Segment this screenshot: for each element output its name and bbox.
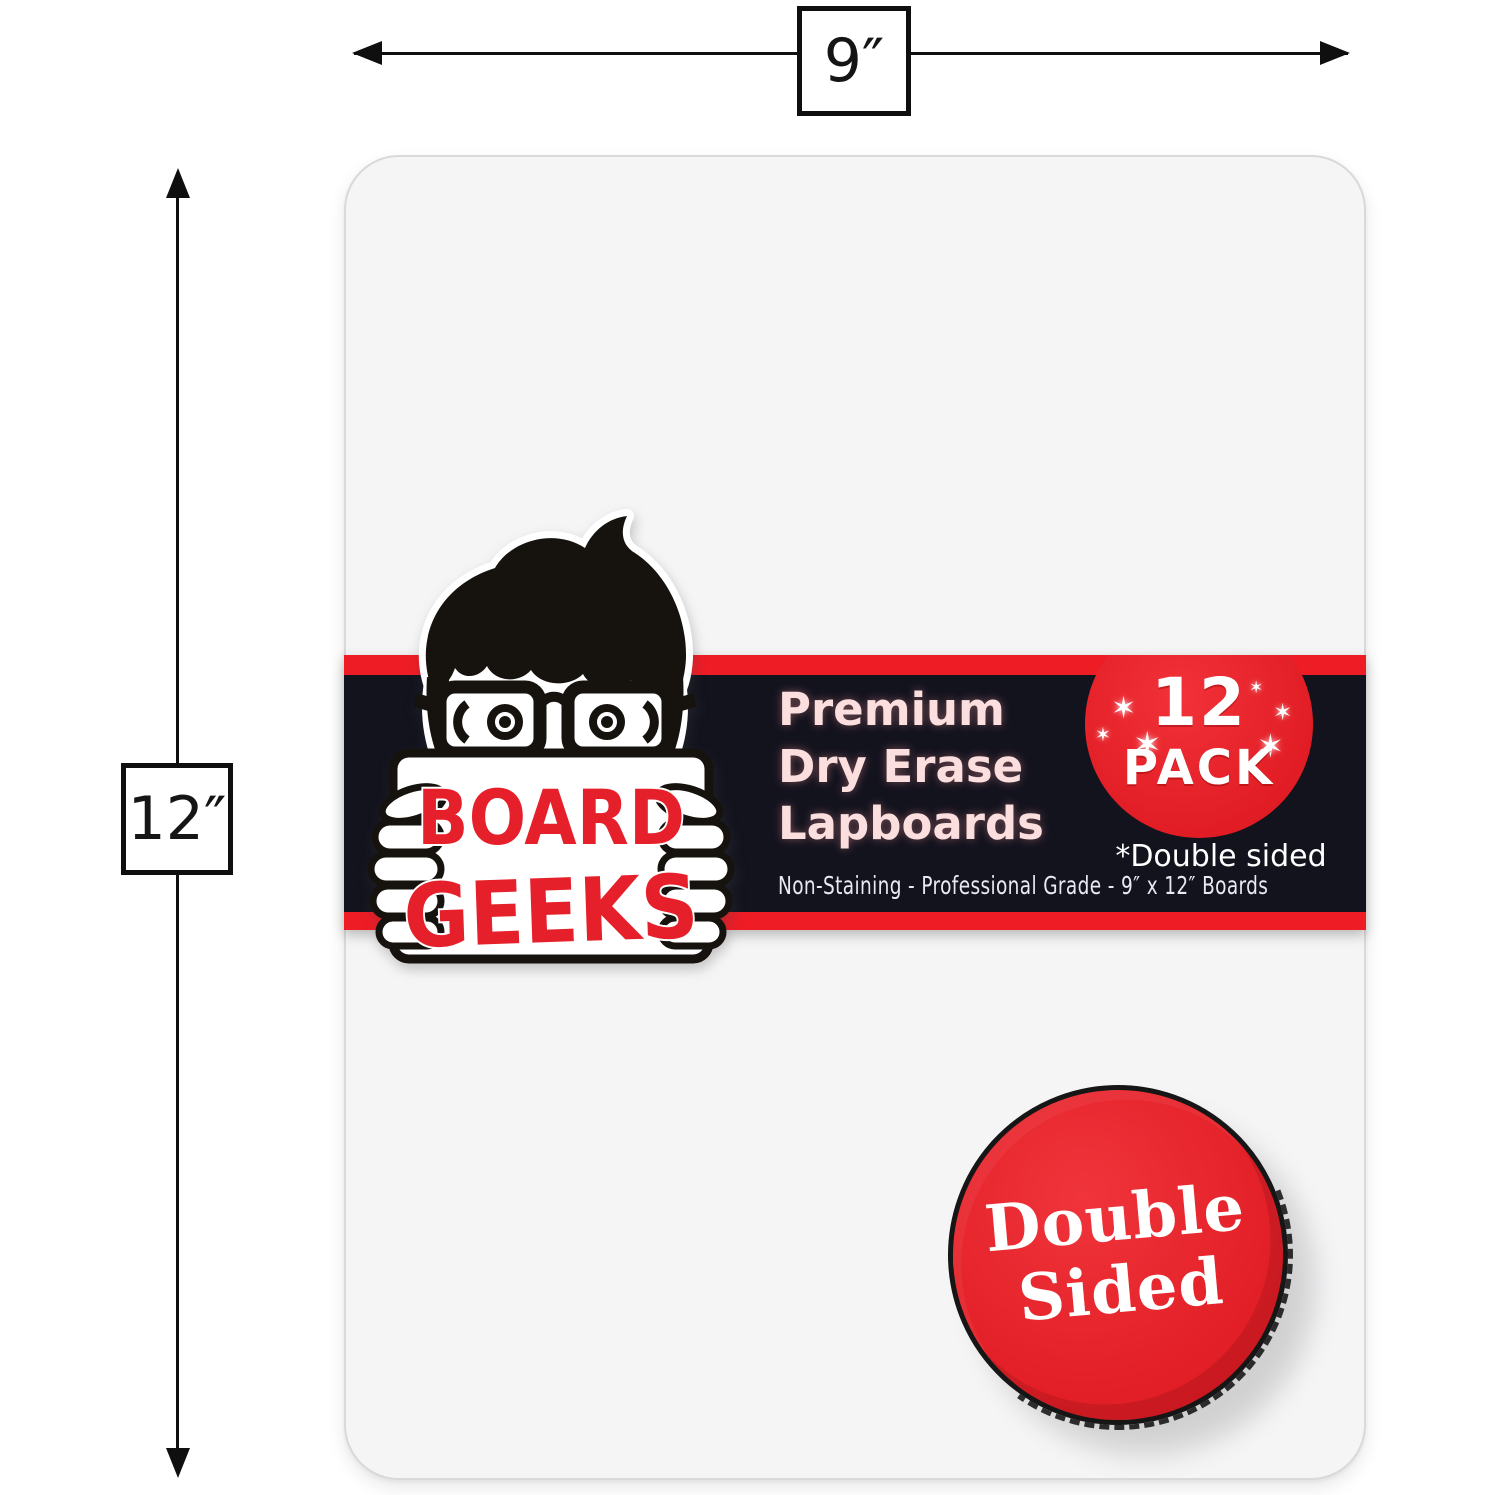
brand-word-geeks: GEEKS	[402, 855, 700, 968]
double-sided-note: *Double sided	[1101, 839, 1341, 874]
arrow-right-icon	[1320, 41, 1350, 65]
product-title-line: Premium	[778, 681, 1044, 738]
arrow-left-icon	[352, 41, 382, 65]
brand-word-board: BOARD	[417, 773, 685, 862]
product-title: Premium Dry Erase Lapboards	[778, 681, 1044, 852]
product-title-line: Dry Erase	[778, 738, 1044, 795]
product-subtitle: Non-Staining - Professional Grade - 9″ x…	[778, 871, 1268, 900]
board-geeks-mascot: BOARD GEEKS	[355, 492, 755, 972]
pack-label: PACK	[1085, 744, 1313, 792]
arrow-up-icon	[166, 168, 190, 198]
pack-count: 12	[1085, 670, 1313, 736]
arrow-down-icon	[166, 1448, 190, 1478]
pack-count-badge: ✶ ✶ ✶ ✶ ✶ ✶ 12 PACK	[1085, 655, 1313, 838]
double-sided-badge-text: Double Sided	[939, 1076, 1297, 1434]
product-title-line: Lapboards	[778, 795, 1044, 852]
double-sided-line2: Sided	[1016, 1246, 1227, 1336]
height-dimension-label: 12″	[121, 763, 233, 875]
width-dimension-label: 9″	[797, 6, 911, 116]
double-sided-badge: Double Sided	[942, 1079, 1294, 1431]
mascot-hair	[426, 516, 686, 705]
